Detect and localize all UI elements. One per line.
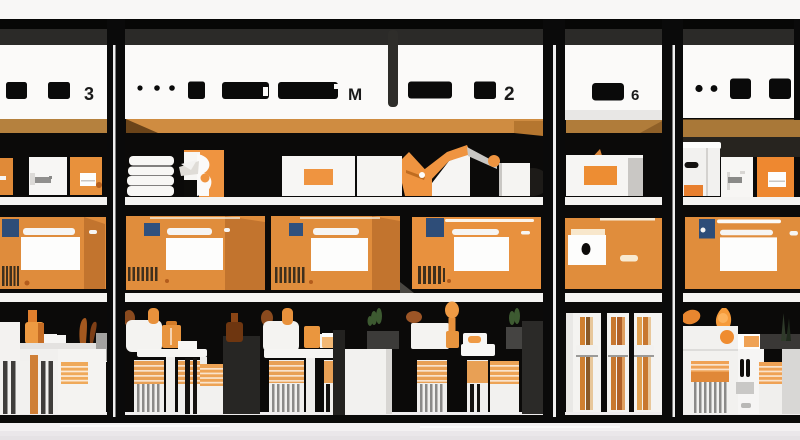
svg-text:M: M bbox=[348, 85, 362, 104]
svg-text:2: 2 bbox=[504, 84, 515, 105]
svg-text:6: 6 bbox=[631, 87, 639, 104]
svg-text:3: 3 bbox=[84, 84, 94, 104]
